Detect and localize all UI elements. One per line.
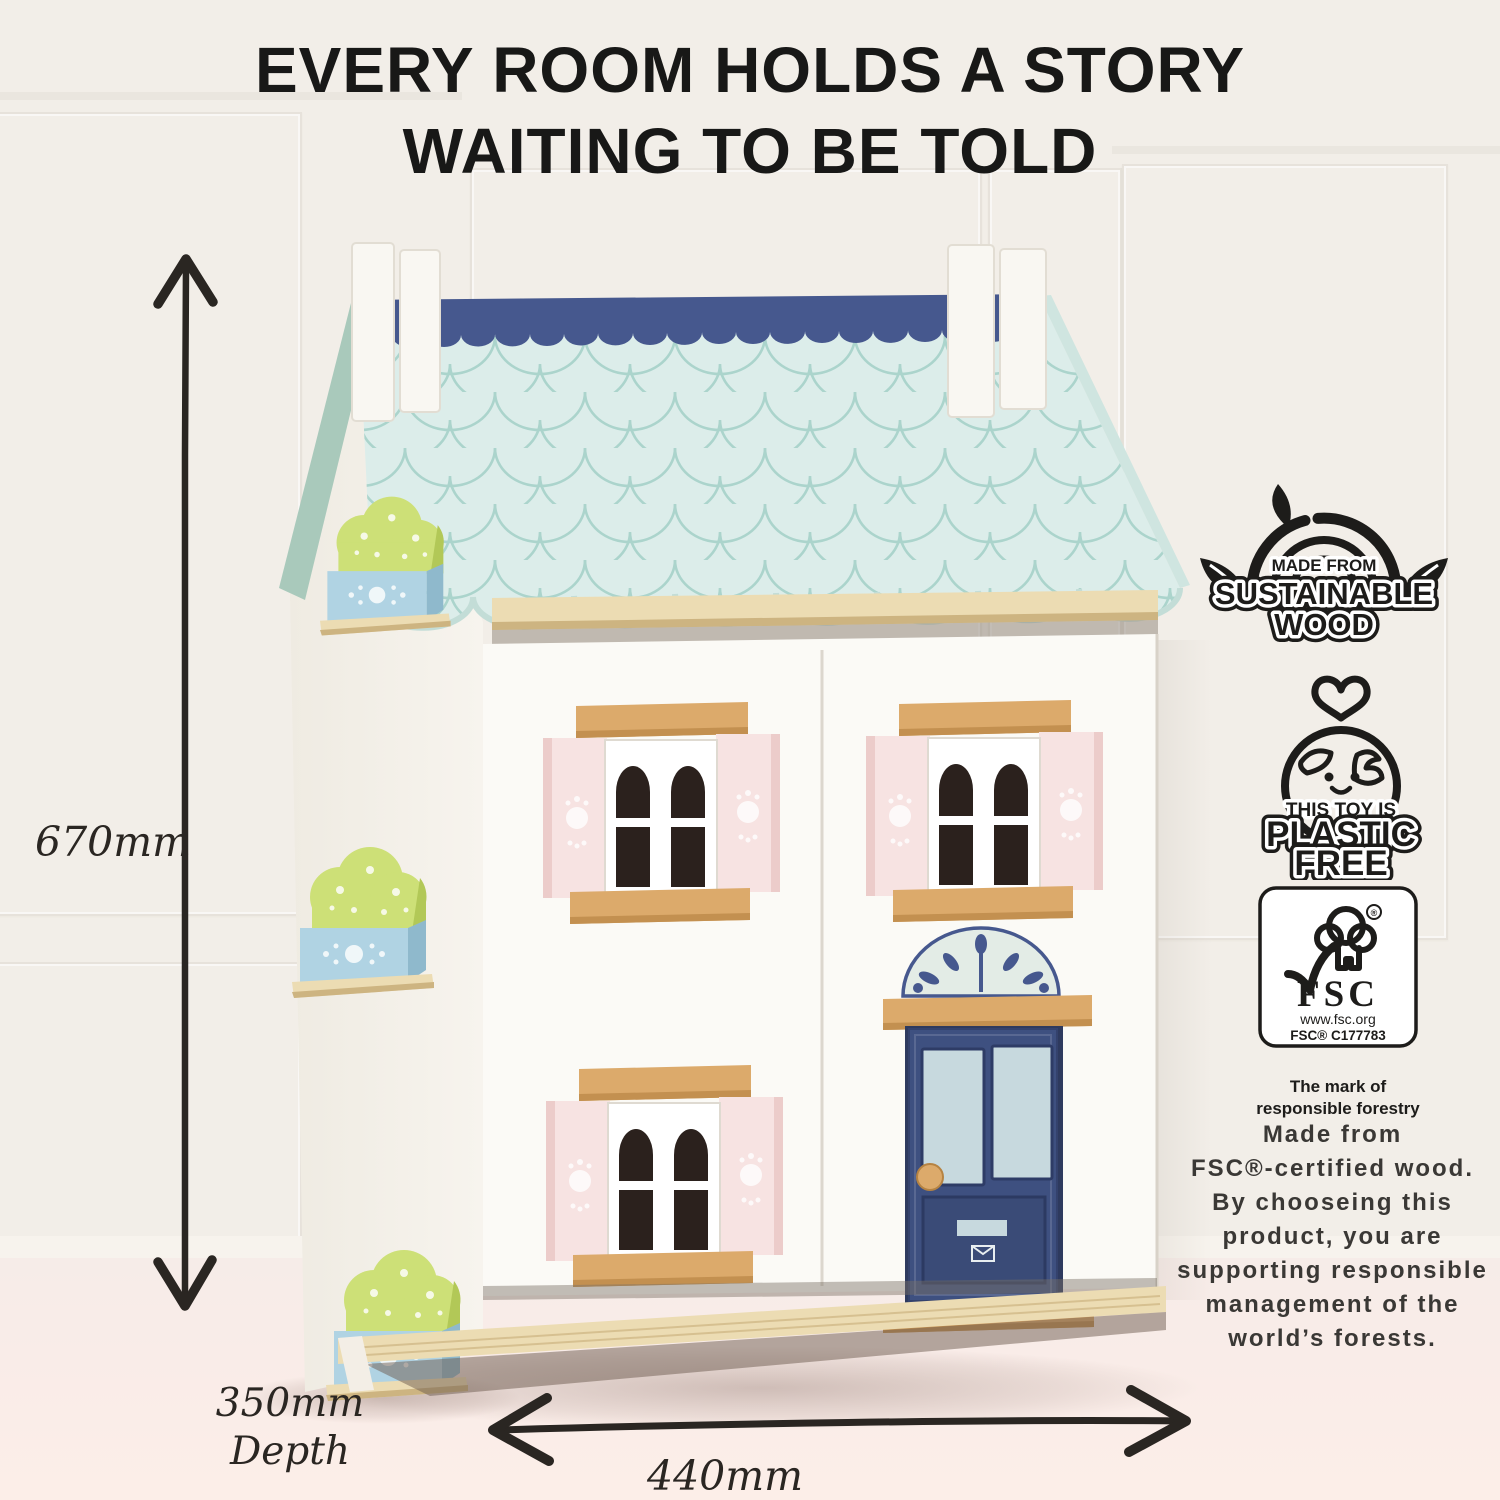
description-line: FSC®-certified wood. xyxy=(1160,1152,1500,1186)
fsc-acronym: FSC xyxy=(1297,974,1379,1015)
fsc-description: Made from FSC®-certified wood. By choose… xyxy=(1160,1118,1500,1357)
fsc-badge: ® FSC www.fsc.org FSC® C177783 xyxy=(1256,884,1420,1052)
free-label: FREE xyxy=(1294,844,1387,880)
height-dimension-label: 670mm xyxy=(35,818,185,866)
window-upper-right xyxy=(866,700,1103,922)
sustainable-wood-badge: MADE FROM MADE FROM SUSTAINABLE SUSTAINA… xyxy=(1198,470,1450,648)
height-arrow xyxy=(158,259,213,1306)
description-line: world’s forests. xyxy=(1160,1322,1500,1356)
roof xyxy=(356,294,1190,628)
heart-icon xyxy=(1315,679,1367,718)
door-lower-panel xyxy=(923,1197,1045,1283)
fsc-url: www.fsc.org xyxy=(1299,1011,1375,1027)
depth-dimension-label: 350mm Depth xyxy=(200,1380,380,1475)
sustainable-label: SUSTAINABLE xyxy=(1215,576,1433,611)
description-line: By chooseing this xyxy=(1160,1186,1500,1220)
door-glass-pane xyxy=(992,1046,1052,1179)
page-background: EVERY ROOM HOLDS A STORY WAITING TO BE T… xyxy=(0,0,1500,1500)
plastic-free-badge: THIS TOY IS THIS TOY IS PLASTIC PLASTIC … xyxy=(1243,656,1439,880)
made-from-label: MADE FROM xyxy=(1272,556,1377,575)
fsc-tagline-line-2: responsible forestry xyxy=(1256,1098,1420,1120)
window-upper-left xyxy=(543,702,780,924)
depth-value: 350mm xyxy=(200,1380,380,1428)
fsc-tagline: The mark of responsible forestry xyxy=(1256,1076,1420,1120)
description-line: management of the xyxy=(1160,1288,1500,1322)
width-dimension-label: 440mm xyxy=(630,1452,820,1500)
description-line: supporting responsible xyxy=(1160,1254,1500,1288)
fsc-tagline-line-1: The mark of xyxy=(1256,1076,1420,1098)
door-knob xyxy=(917,1164,943,1190)
depth-word: Depth xyxy=(200,1428,380,1476)
description-line: product, you are xyxy=(1160,1220,1500,1254)
window-lower-left xyxy=(546,1065,783,1287)
letter-slot xyxy=(957,1220,1007,1236)
description-line: Made from xyxy=(1160,1118,1500,1152)
wood-label: WOOD xyxy=(1274,607,1374,642)
fsc-license: FSC® C177783 xyxy=(1290,1028,1386,1043)
registered-mark: ® xyxy=(1371,908,1378,918)
